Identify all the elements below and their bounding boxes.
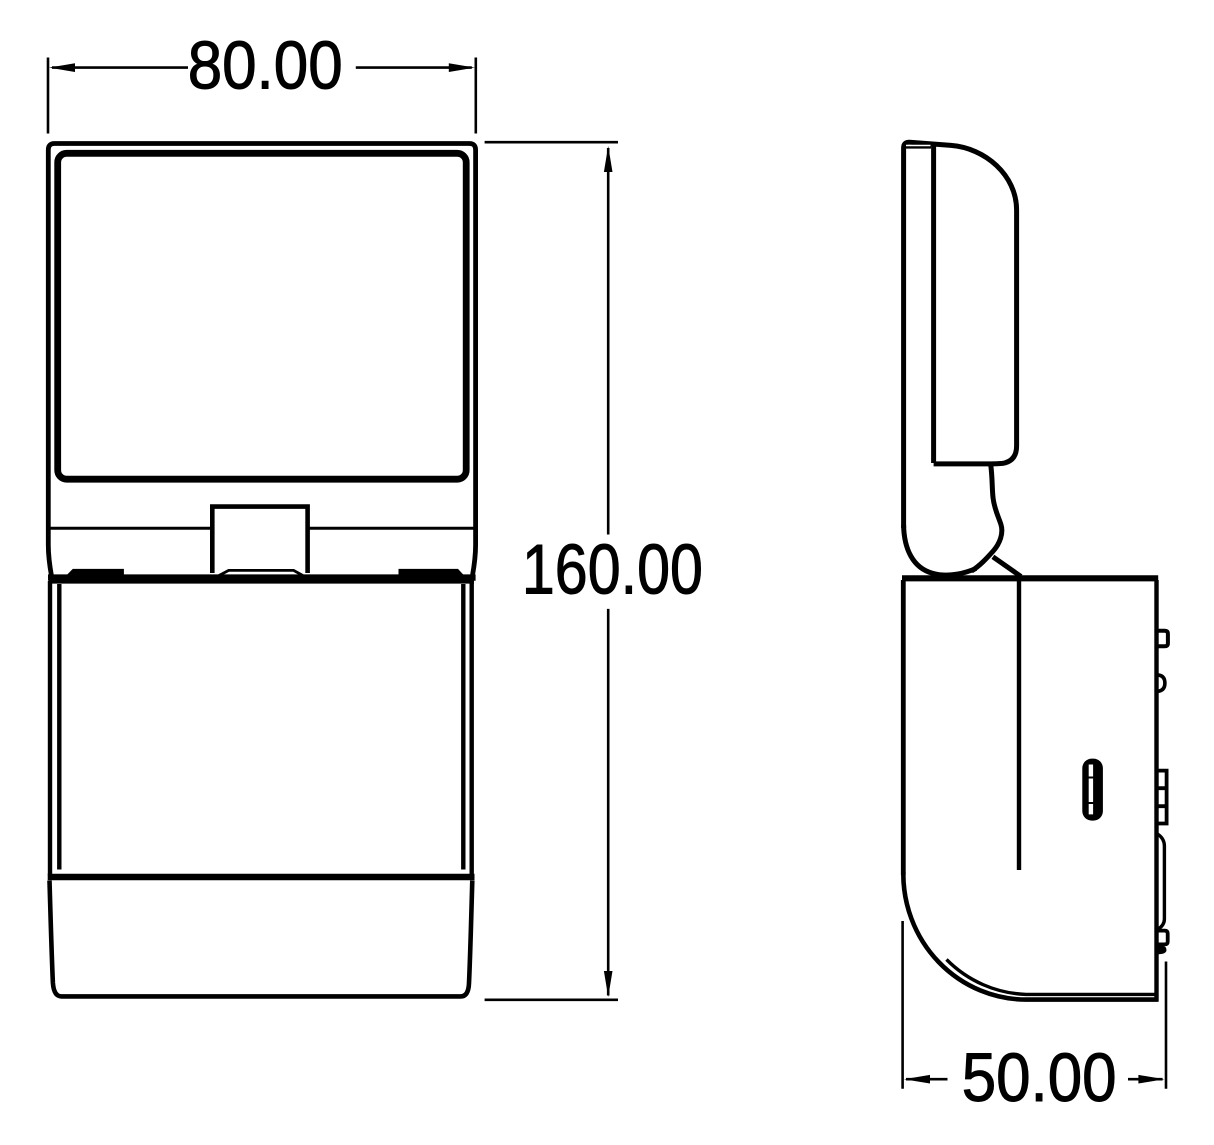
svg-text:50.00: 50.00	[962, 1039, 1117, 1116]
svg-text:80.00: 80.00	[188, 27, 343, 103]
svg-text:160.00: 160.00	[522, 529, 703, 608]
